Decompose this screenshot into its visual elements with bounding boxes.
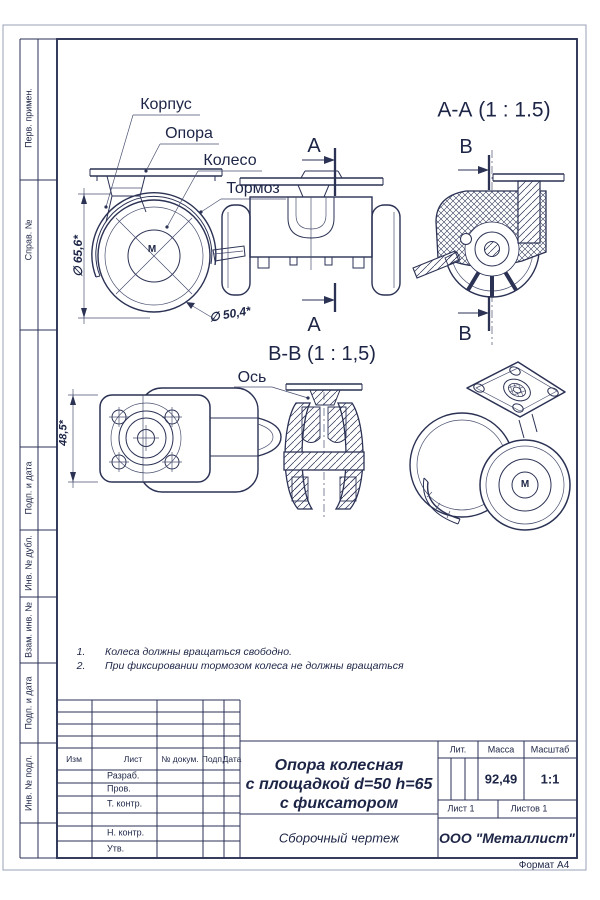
sheet-number: Лист 1 [447, 805, 474, 814]
massa-label: Масса [488, 746, 515, 755]
drawing-title-line-2: с площадкой d=50 h=65 [246, 777, 433, 793]
callout-opora: Опора [165, 126, 213, 142]
format-note: Формат А4 [519, 861, 570, 871]
margin-label-sprav-no: Справ. № [25, 220, 34, 261]
rev-col-izm: Изм [66, 755, 82, 764]
note-2-text: При фиксировании тормозом колеса не долж… [105, 661, 404, 672]
dim-height: 48,5* [59, 420, 70, 446]
rev-col-data: Дата [223, 755, 242, 764]
front-view [222, 148, 400, 312]
role-utv: Утв. [107, 845, 124, 854]
margin-label-perv-primen: Перв. примен. [25, 88, 34, 148]
rev-col-dokum: № докум. [161, 755, 198, 764]
note-2-number: 2. [77, 661, 86, 672]
margin-label-inv-no-podl: Инв. № подл. [25, 755, 34, 811]
lit-label: Лит. [450, 746, 467, 755]
sheets-total: Листов 1 [511, 805, 548, 814]
cut-mark-b-bottom: В [458, 324, 471, 344]
wheel-mark-side: М [148, 245, 156, 255]
side-view [78, 115, 286, 324]
margin-label-vzam-inv-no: Взам. инв. № [25, 602, 34, 658]
role-razrab: Разраб. [107, 772, 139, 781]
margin-label-podp-i-data-2: Подп. и дата [25, 676, 34, 729]
isometric-view [410, 362, 570, 530]
masshtab-value: 1:1 [541, 773, 560, 786]
role-prov: Пров. [107, 785, 131, 794]
note-1-number: 1. [77, 647, 86, 658]
section-aa-view [413, 150, 564, 345]
margin-label-podp-i-data-1: Подп. и дата [25, 461, 34, 514]
role-n-kontr: Н. контр. [107, 829, 144, 838]
cut-mark-a-bottom: А [307, 315, 320, 335]
massa-value: 92,49 [485, 773, 518, 786]
company-name: ООО "Металлист" [439, 831, 575, 845]
section-bb-view [234, 384, 364, 518]
callout-korpus: Корпус [140, 97, 192, 113]
drawing-sheet: .s1{stroke:#2b3254;stroke-width:1.4;fill… [0, 0, 600, 900]
drawing-title-line-1: Опора колесная [275, 758, 404, 774]
doc-type: Сборочный чертеж [279, 832, 399, 845]
rev-col-list: Лист [124, 755, 142, 764]
drawing-title-line-3: с фиксатором [280, 796, 398, 812]
section-bb-title: В-В (1 : 1,5) [268, 344, 376, 364]
note-1-text: Колеса должны вращаться свободно. [105, 647, 292, 658]
callout-koleso: Колесо [203, 153, 256, 169]
masshtab-label: Масштаб [531, 746, 570, 755]
plan-view [68, 388, 281, 492]
role-t-kontr: Т. контр. [107, 800, 142, 809]
margin-label-inv-no-dubl: Инв. № дубл. [25, 535, 34, 591]
cut-mark-a-top: А [307, 136, 320, 156]
callout-tormoz: Тормоз [226, 181, 279, 197]
cut-mark-b-top: В [459, 137, 472, 157]
rev-col-podp: Подп. [202, 755, 225, 764]
wheel-mark-iso: М [521, 480, 529, 490]
callout-os: Ось [238, 370, 267, 386]
dim-outer-diameter: ∅ 65,6* [72, 235, 84, 277]
section-aa-title: А-А (1 : 1.5) [437, 100, 550, 121]
